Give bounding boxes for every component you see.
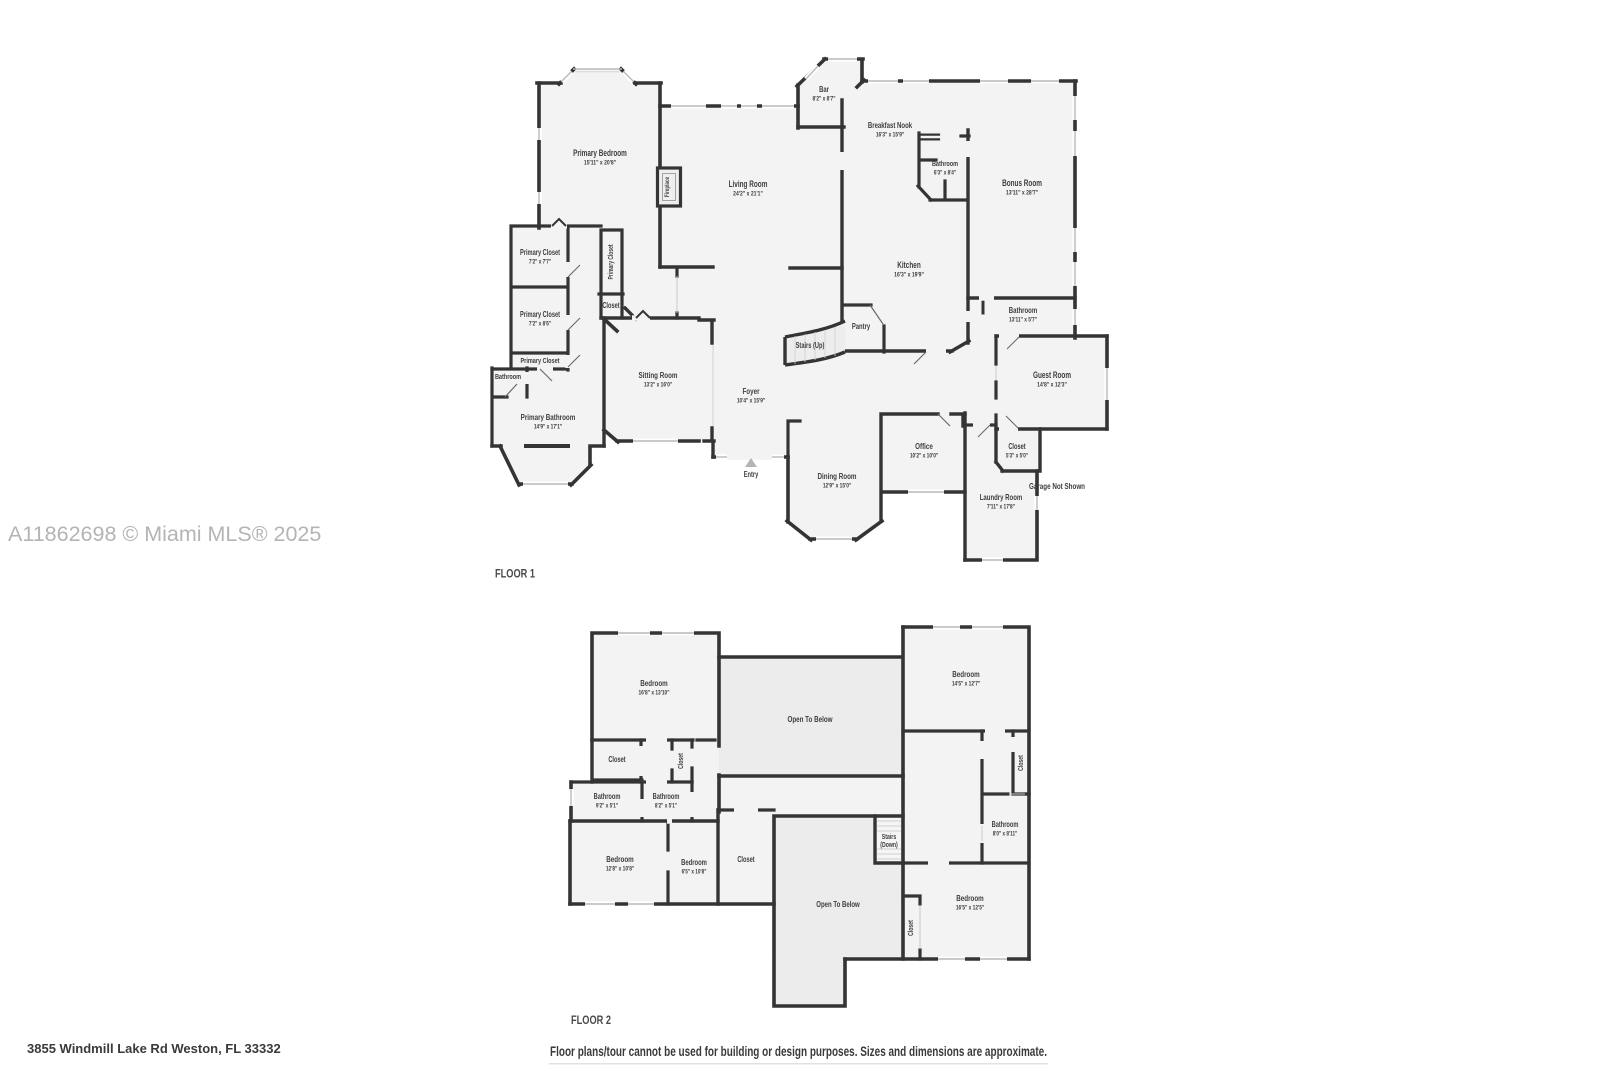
svg-text:Closet: Closet — [737, 856, 755, 864]
svg-text:16'5" x 12'5": 16'5" x 12'5" — [956, 905, 985, 912]
svg-text:Bedroom: Bedroom — [606, 854, 634, 864]
svg-text:Breakfast Nook: Breakfast Nook — [868, 120, 913, 130]
svg-text:14'5" x 12'7": 14'5" x 12'7" — [952, 681, 981, 688]
svg-text:8'0" x 8'11": 8'0" x 8'11" — [993, 831, 1018, 838]
svg-text:7'2" x 8'6": 7'2" x 8'6" — [529, 321, 552, 328]
svg-text:Bathroom: Bathroom — [1009, 305, 1038, 315]
svg-text:7'2" x 7'7": 7'2" x 7'7" — [529, 259, 552, 266]
svg-text:Garage Not Shown: Garage Not Shown — [1029, 481, 1085, 491]
svg-text:Bathroom: Bathroom — [594, 793, 621, 801]
svg-text:9'2" x 5'1": 9'2" x 5'1" — [596, 803, 619, 810]
svg-text:Fireplace: Fireplace — [664, 177, 671, 197]
svg-text:Primary Bathroom: Primary Bathroom — [521, 412, 576, 422]
svg-text:Primary Closet: Primary Closet — [608, 244, 615, 279]
svg-text:Laundry Room: Laundry Room — [980, 492, 1023, 502]
svg-text:Bathroom: Bathroom — [653, 793, 680, 801]
svg-text:Bathroom: Bathroom — [992, 821, 1019, 829]
svg-text:FLOOR 1: FLOOR 1 — [495, 567, 535, 581]
svg-text:Bedroom: Bedroom — [681, 858, 707, 867]
svg-text:15'11" x 20'8": 15'11" x 20'8" — [584, 160, 616, 167]
svg-text:Entry: Entry — [744, 471, 759, 479]
svg-text:Guest Room: Guest Room — [1033, 370, 1071, 380]
svg-text:Dining Room: Dining Room — [818, 471, 857, 481]
svg-text:13'11" x 28'7": 13'11" x 28'7" — [1006, 190, 1038, 197]
svg-text:Closet: Closet — [1008, 443, 1026, 451]
svg-text:Kitchen: Kitchen — [897, 260, 921, 270]
svg-text:Stairs (Up): Stairs (Up) — [796, 342, 825, 350]
svg-text:Bedroom: Bedroom — [952, 669, 980, 679]
svg-text:16'8" x 13'10": 16'8" x 13'10" — [638, 690, 669, 697]
svg-text:Bathroom: Bathroom — [495, 373, 521, 381]
svg-text:Bedroom: Bedroom — [956, 893, 984, 903]
svg-text:10'4" x 15'9": 10'4" x 15'9" — [737, 398, 766, 405]
svg-text:Living Room: Living Room — [729, 179, 768, 189]
svg-text:24'2" x 21'1": 24'2" x 21'1" — [733, 191, 763, 198]
svg-text:14'8" x 12'3": 14'8" x 12'3" — [1037, 382, 1067, 389]
svg-text:12'8" x 10'8": 12'8" x 10'8" — [606, 866, 635, 873]
svg-text:8'2" x 5'1": 8'2" x 5'1" — [655, 803, 678, 810]
svg-text:Bonus Room: Bonus Room — [1002, 178, 1042, 188]
svg-text:10'2" x 10'0": 10'2" x 10'0" — [910, 453, 939, 460]
svg-text:Primary Closet: Primary Closet — [520, 357, 560, 365]
svg-text:Foyer: Foyer — [742, 386, 759, 396]
svg-text:Closet: Closet — [907, 919, 915, 936]
svg-text:13'11" x 5'7": 13'11" x 5'7" — [1009, 317, 1037, 324]
svg-text:Primary Closet: Primary Closet — [520, 249, 561, 257]
svg-text:Primary Bedroom: Primary Bedroom — [573, 148, 627, 158]
svg-text:Bedroom: Bedroom — [640, 678, 668, 688]
svg-text:Pantry: Pantry — [852, 322, 870, 331]
svg-text:A11862698 © Miami MLS® 2025: A11862698 © Miami MLS® 2025 — [8, 522, 321, 546]
svg-text:3855 Windmill Lake Rd Weston,: 3855 Windmill Lake Rd Weston, FL 33332 — [27, 1041, 281, 1056]
svg-text:8'2" x 8'7": 8'2" x 8'7" — [813, 96, 836, 103]
svg-text:(Down): (Down) — [880, 841, 898, 849]
svg-text:16'3" x 19'9": 16'3" x 19'9" — [894, 272, 924, 279]
svg-text:13'2" x 16'0": 13'2" x 16'0" — [644, 382, 673, 389]
svg-text:FLOOR 2: FLOOR 2 — [571, 1013, 611, 1027]
svg-text:Closet: Closet — [602, 302, 620, 310]
svg-text:Bar: Bar — [819, 85, 829, 94]
svg-text:Sitting Room: Sitting Room — [639, 370, 678, 380]
svg-text:Office: Office — [915, 441, 933, 451]
svg-text:12'9" x 15'0": 12'9" x 15'0" — [823, 483, 852, 490]
svg-text:Primary Closet: Primary Closet — [520, 311, 561, 319]
svg-text:Open To Below: Open To Below — [787, 714, 832, 724]
svg-text:7'11" x 17'8": 7'11" x 17'8" — [987, 504, 1015, 511]
svg-text:Closet: Closet — [677, 752, 685, 769]
svg-text:5'3" x 5'0": 5'3" x 5'0" — [1006, 453, 1029, 460]
svg-text:Bathroom: Bathroom — [932, 160, 958, 168]
svg-text:Stairs: Stairs — [882, 833, 897, 841]
svg-text:Floor plans/tour cannot be use: Floor plans/tour cannot be used for buil… — [550, 1044, 1047, 1059]
svg-text:6'5" x 10'8": 6'5" x 10'8" — [682, 869, 707, 876]
svg-text:16'3" x 15'9": 16'3" x 15'9" — [876, 132, 905, 139]
svg-text:Closet: Closet — [608, 756, 626, 764]
svg-text:Closet: Closet — [1017, 754, 1025, 771]
svg-text:6'3" x 8'4": 6'3" x 8'4" — [934, 170, 957, 177]
svg-text:14'9" x 17'1": 14'9" x 17'1" — [534, 424, 563, 431]
svg-text:Open To Below: Open To Below — [816, 899, 860, 909]
